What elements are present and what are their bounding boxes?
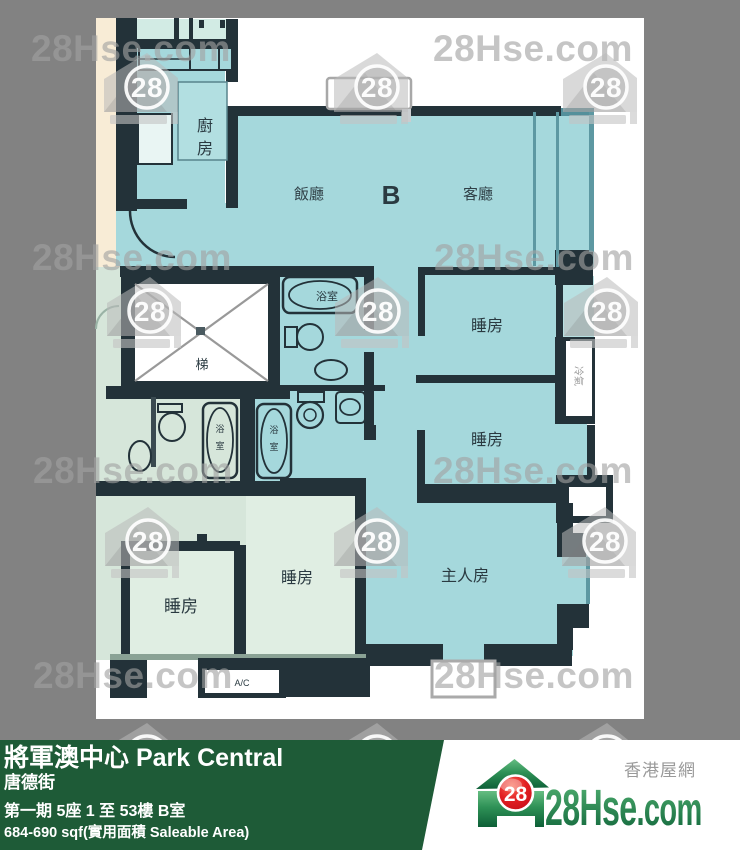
- svg-text:睡房: 睡房: [164, 597, 198, 616]
- svg-text:B: B: [382, 180, 401, 210]
- svg-text:28Hse.com: 28Hse.com: [545, 780, 702, 837]
- svg-text:冷氣: 冷氣: [572, 366, 585, 386]
- svg-text:684-690 sqf(實用面積 Saleable Area: 684-690 sqf(實用面積 Saleable Area): [4, 823, 249, 841]
- svg-text:第一期 5座 1 至 53樓 B室: 第一期 5座 1 至 53樓 B室: [4, 801, 185, 820]
- svg-text:28Hse.com: 28Hse.com: [32, 237, 232, 278]
- svg-text:28Hse.com: 28Hse.com: [33, 655, 233, 696]
- svg-text:28Hse.com: 28Hse.com: [433, 450, 633, 491]
- svg-text:浴室: 浴室: [316, 289, 338, 303]
- svg-text:室: 室: [269, 441, 278, 452]
- svg-text:梯: 梯: [195, 357, 208, 372]
- svg-text:唐德街: 唐德街: [4, 772, 55, 792]
- svg-text:香港屋網: 香港屋網: [624, 761, 696, 780]
- svg-text:客廳: 客廳: [463, 185, 493, 203]
- svg-text:28: 28: [504, 783, 528, 806]
- svg-text:浴: 浴: [269, 425, 278, 435]
- svg-text:睡房: 睡房: [281, 569, 313, 587]
- svg-text:廚: 廚: [197, 116, 213, 135]
- svg-text:主人房: 主人房: [441, 567, 489, 585]
- svg-text:28Hse.com: 28Hse.com: [33, 450, 233, 491]
- svg-text:將軍澳中心 Park Central: 將軍澳中心 Park Central: [4, 743, 283, 772]
- svg-text:飯廳: 飯廳: [294, 185, 324, 203]
- svg-text:28Hse.com: 28Hse.com: [434, 655, 634, 696]
- svg-text:浴: 浴: [215, 424, 224, 434]
- svg-text:A/C: A/C: [234, 678, 250, 688]
- svg-text:睡房: 睡房: [471, 317, 503, 335]
- svg-text:睡房: 睡房: [471, 431, 503, 449]
- svg-text:28Hse.com: 28Hse.com: [434, 237, 634, 278]
- svg-text:房: 房: [197, 140, 213, 158]
